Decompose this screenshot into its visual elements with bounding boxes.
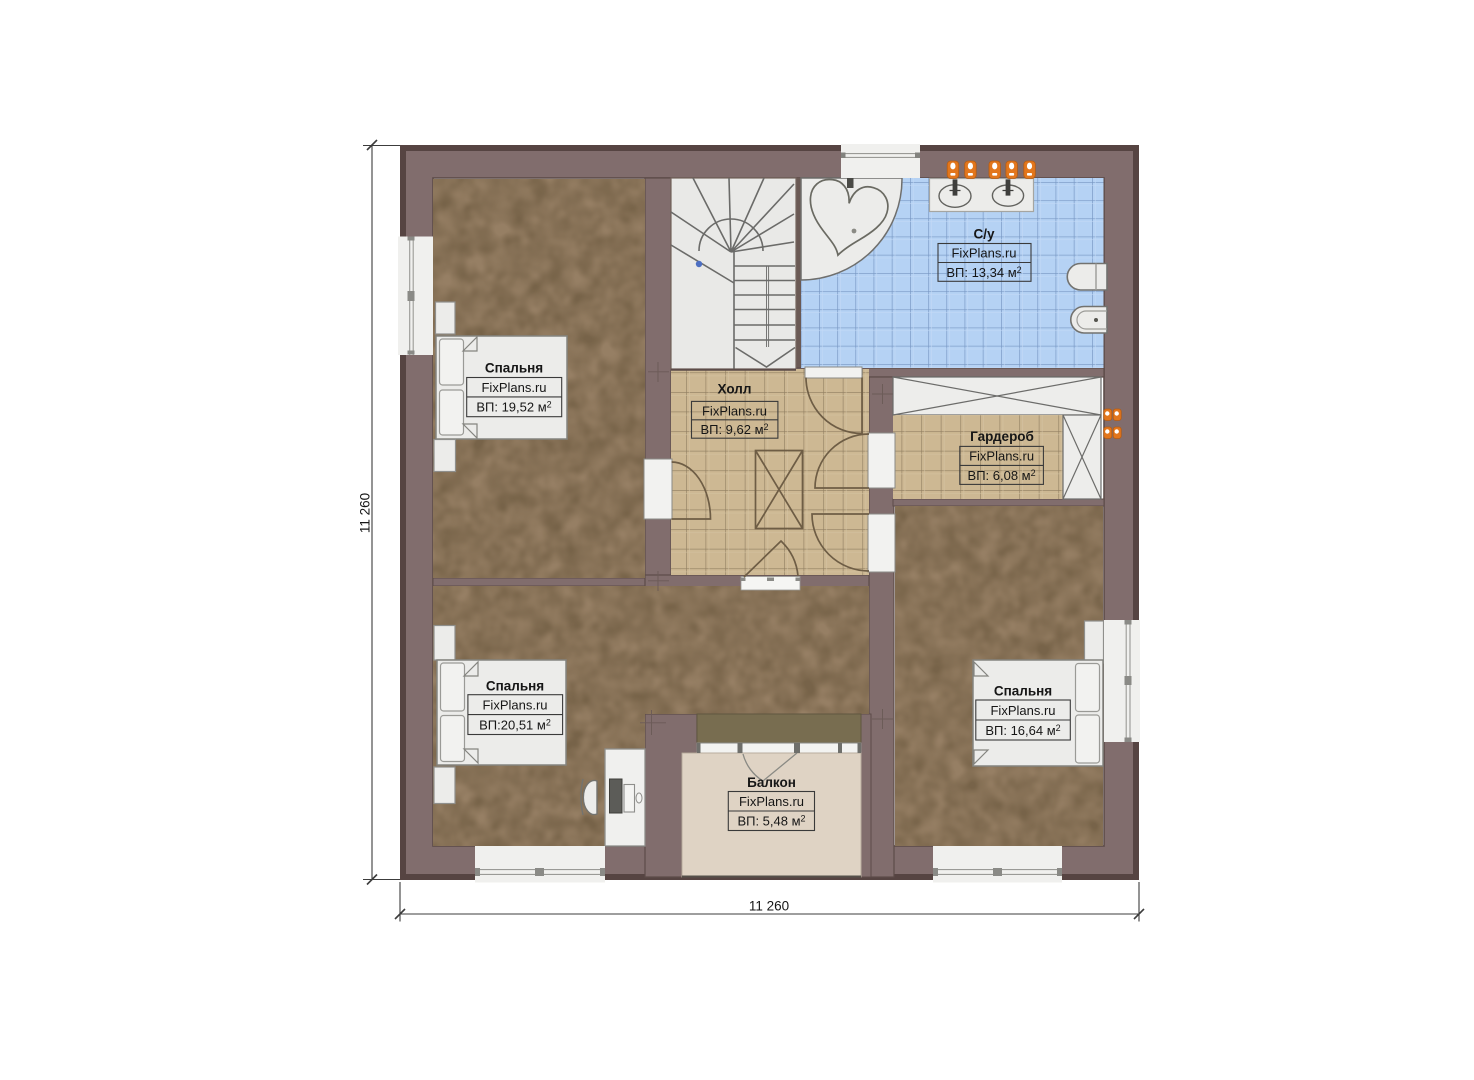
svg-text:FixPlans.ru: FixPlans.ru: [951, 246, 1016, 261]
svg-text:ВП: 9,62 м2: ВП: 9,62 м2: [700, 422, 768, 437]
svg-text:Спальня: Спальня: [486, 679, 544, 694]
svg-text:Балкон: Балкон: [747, 775, 796, 790]
svg-text:ВП: 19,52 м2: ВП: 19,52 м2: [476, 400, 551, 415]
svg-text:Спальня: Спальня: [485, 361, 543, 376]
svg-text:Гардероб: Гардероб: [970, 429, 1034, 444]
svg-text:FixPlans.ru: FixPlans.ru: [482, 698, 547, 713]
svg-text:ВП: 6,08 м2: ВП: 6,08 м2: [968, 468, 1036, 483]
svg-text:FixPlans.ru: FixPlans.ru: [969, 448, 1034, 463]
svg-text:11 260: 11 260: [749, 899, 789, 914]
svg-text:Спальня: Спальня: [994, 684, 1052, 699]
svg-text:ВП: 5,48 м2: ВП: 5,48 м2: [737, 814, 805, 829]
svg-text:11 260: 11 260: [358, 493, 373, 533]
svg-text:С/у: С/у: [973, 227, 995, 242]
svg-text:ВП: 16,64 м2: ВП: 16,64 м2: [985, 723, 1060, 738]
svg-text:FixPlans.ru: FixPlans.ru: [702, 403, 767, 418]
svg-text:FixPlans.ru: FixPlans.ru: [481, 380, 546, 395]
svg-text:FixPlans.ru: FixPlans.ru: [990, 703, 1055, 718]
svg-text:FixPlans.ru: FixPlans.ru: [739, 794, 804, 809]
svg-text:ВП:20,51 м2: ВП:20,51 м2: [479, 718, 551, 733]
svg-text:Холл: Холл: [718, 382, 752, 397]
svg-text:ВП: 13,34 м2: ВП: 13,34 м2: [946, 265, 1021, 280]
